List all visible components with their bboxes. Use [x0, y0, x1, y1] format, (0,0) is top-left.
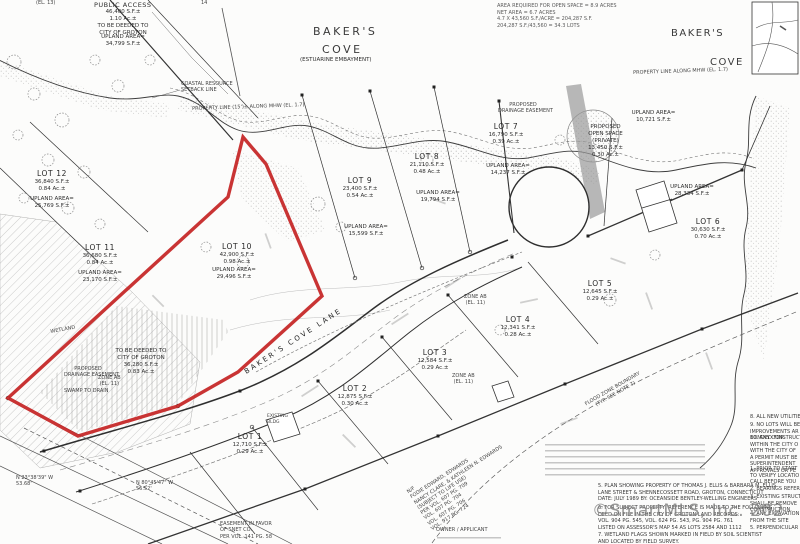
- micro-annotation-smudges: [152, 197, 713, 448]
- lot-1-label: LOT 1 12,710 S.F.± 0.29 Ac.±: [225, 432, 275, 456]
- smartmls-watermark: ©SmartMLS, Inc. 202: [592, 501, 784, 521]
- elevation-13-label: (EL. 13): [36, 0, 55, 6]
- lot-6-label: LOT 6 30,630 S.F.± 0.70 Ac.±: [682, 217, 734, 241]
- reference-notes-smudge: [545, 444, 705, 478]
- open-space-label: PROPOSEDOPEN SPACE(PRIVATE)13,450 S.F.±0…: [578, 124, 633, 158]
- cove-title-line2: COVE: [322, 43, 363, 57]
- public-access-title: PUBLIC ACCESS: [94, 1, 152, 9]
- lot-10-label: LOT 10 42,900 S.F.± 0.98 Ac.±: [206, 242, 268, 266]
- note-plan-reference: 5. PLAN SHOWING PROPERTY OF THOMAS J. EL…: [598, 483, 776, 503]
- lot-2-label: LOT 2 12,875 S.F.± 0.30 Ac.±: [329, 384, 381, 408]
- lot-9-label: LOT 9 23,400 S.F.± 0.54 Ac.±: [329, 176, 391, 200]
- lot-8-upland: UPLAND AREA= 19,794 S.F.±: [408, 190, 468, 204]
- cove-title-line1: BAKER'S: [313, 25, 377, 39]
- drainage-easement-label-north: PROPOSEDDRAINAGE EASEMENT: [498, 102, 548, 115]
- survey-map-scan: (EL. 13) 14 PUBLIC ACCESS 46,400 S.F.±1.…: [0, 0, 800, 544]
- lot-7-upland: UPLAND AREA= 14,237 S.F.±: [480, 163, 536, 177]
- note-8: 8. ALL NEW UTILITIE: [750, 414, 800, 421]
- bearing-label-2: N 80°45'47" W56.52': [136, 480, 173, 493]
- lot-4-label: LOT 4 12,341 S.F.± 0.28 Ac.±: [492, 315, 544, 339]
- snet-easement-label: EASEMENT IN FAVOROF SNET CO.PER VOL. 141…: [220, 521, 272, 540]
- owner-name-smudge: [437, 537, 501, 542]
- public-access-upland: UPLAND AREA=34,799 S.F.±: [92, 34, 154, 48]
- cove-right-line1: BAKER'S: [671, 28, 724, 41]
- zone-ab-label-1: ZONE AB(EL. 11): [464, 294, 487, 307]
- coastal-setback-label: COASTAL RESOURCESETBACK LINE: [181, 81, 233, 94]
- lot-12-label: LOT 12 36,840 S.F.± 0.84 Ac.± UPLAND ARE…: [22, 169, 82, 210]
- lot-3-label: LOT 3 12,584 S.F.± 0.29 Ac.±: [410, 348, 460, 372]
- inset-map: [752, 2, 798, 74]
- drainage-easement-label-south: PROPOSEDDRAINAGE EASEMENT: [64, 366, 112, 379]
- lot-8-label: LOT 8 21,110 S.F.± 0.48 Ac.±: [397, 152, 457, 176]
- estuarine-embayment-label: (ESTUARINE EMBAYMENT): [300, 57, 372, 64]
- zone-ab-label-2: ZONE AB(EL. 11): [452, 373, 475, 386]
- lot-11-label: LOT 11 36,680 S.F.± 0.84 Ac.± UPLAND ARE…: [70, 243, 130, 284]
- public-access-areas: 46,400 S.F.±1.10 Ac.±TO BE DEEDED TOCITY…: [88, 9, 158, 37]
- sheet-number-label: 14: [201, 0, 207, 6]
- deeded-parcel-label: TO BE DEEDED TOCITY OF GROTON36,280 S.F.…: [110, 348, 172, 376]
- cul-de-sac: [509, 167, 589, 247]
- open-space-upland: UPLAND AREA= 10,721 S.F.±: [626, 110, 681, 124]
- bearing-label-1: N 23°38'39" W53.68': [16, 475, 53, 488]
- building-footprints: [266, 181, 677, 442]
- open-space-calc-note: AREA REQUIRED FOR OPEN SPACE = 8.9 ACRES…: [497, 3, 617, 29]
- existing-building-label: EXISTINGBLDG: [267, 414, 288, 425]
- lot-9-upland: UPLAND AREA= 15,599 S.F.±: [335, 224, 397, 238]
- lot-10-upland: UPLAND AREA= 29,496 S.F.±: [203, 267, 265, 281]
- note-wetland-flags: 7. WETLAND FLAGS SHOWN MARKED IN FIELD B…: [598, 532, 762, 544]
- lot-7-label: LOT 7 16,790 S.F.± 0.39 Ac.±: [478, 122, 534, 146]
- lot-5-label: LOT 5 12,645 S.F.± 0.29 Ac.±: [574, 279, 626, 303]
- owner-applicant-label: OWNER / APPLICANT: [436, 527, 488, 533]
- lot-6-upland: UPLAND AREA= 28,334 S.F.±: [666, 184, 718, 198]
- swamp-to-drain-label: SWAMP TO DRAIN: [64, 388, 109, 394]
